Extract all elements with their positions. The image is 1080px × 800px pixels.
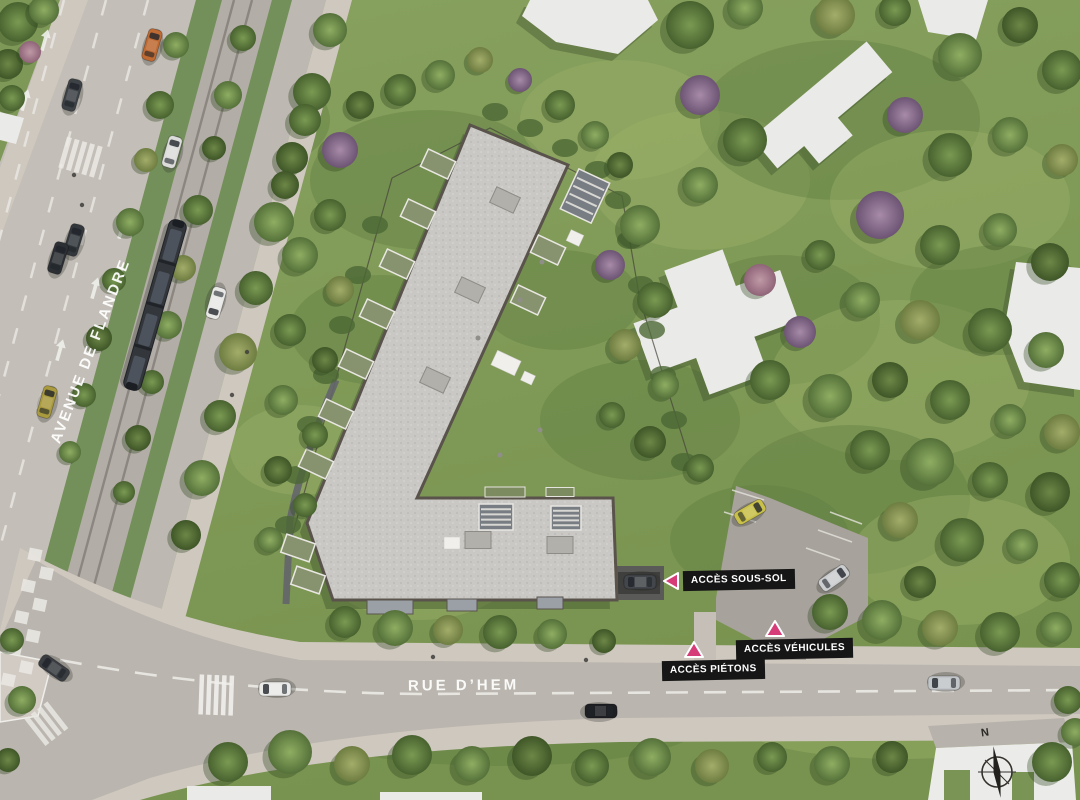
tree [8,686,36,714]
tree [254,202,294,242]
tree [856,191,904,239]
tree [980,612,1020,652]
tree [1031,243,1069,281]
tree [872,362,908,398]
tree [239,271,273,305]
car [927,672,965,692]
tree [983,213,1017,247]
tree [1044,414,1080,450]
tree [805,240,835,270]
access-arrow-up-pedestrians-icon [682,638,706,660]
site-plan: AVENUE DE FLANDRE RUE D’HEM ACCÈS SOUS-S… [0,0,1080,800]
tree [1044,562,1080,598]
tree [1046,144,1078,176]
tree [204,400,236,432]
tree [994,404,1026,436]
tree [302,422,328,448]
tree [0,85,25,111]
tree [289,104,321,136]
tree [750,360,790,400]
rue-dhem-label: RUE D’HEM [408,676,519,694]
tree [900,300,940,340]
car [258,678,296,698]
compass-north-label: N [980,727,990,740]
tree [276,142,308,174]
tree [1040,612,1072,644]
tree [0,628,24,652]
tree [682,167,718,203]
car [580,702,618,722]
tree [377,610,413,646]
tree [125,425,151,451]
tree [214,81,242,109]
tree [483,615,517,649]
tree [757,742,787,772]
tree [313,13,347,47]
tree [940,518,984,562]
tree [1002,7,1038,43]
acces-vehicules-label: ACCÈS VÉHICULES [736,638,853,660]
tree [922,610,958,646]
tree [850,430,890,470]
tree [651,371,679,399]
aerial-rendering [0,0,1080,800]
tree [293,493,317,517]
tree [184,460,220,496]
tree [326,276,354,304]
tree [537,619,567,649]
tree [723,118,767,162]
tree [920,225,960,265]
tree [814,746,850,782]
tree [282,237,318,273]
tree [329,606,361,638]
tree [264,456,292,484]
tree [862,600,902,640]
tree [230,25,256,51]
tree [620,205,660,245]
tree [906,438,954,486]
tree [633,738,671,776]
tree [575,749,609,783]
tree [384,74,416,106]
tree [637,282,673,318]
tree [314,199,346,231]
tree [334,746,370,782]
tree [938,33,982,77]
tree [887,97,923,133]
compass-icon [952,722,1042,800]
tree [784,316,816,348]
tree [1006,529,1038,561]
tree [467,47,493,73]
car [623,571,661,591]
tree [968,308,1012,352]
tree [930,380,970,420]
tree [183,195,213,225]
tree [595,250,625,280]
tree [992,117,1028,153]
tree [581,121,609,149]
tree [274,314,306,346]
tree [113,481,135,503]
tree [844,282,880,318]
tree [454,746,490,782]
tree [512,736,552,776]
tree [928,133,972,177]
tree [609,329,641,361]
tree [812,594,848,630]
tree [268,730,312,774]
tree [599,402,625,428]
tree [202,136,226,160]
tree [163,32,189,58]
acces-sous-sol-label: ACCÈS SOUS-SOL [683,569,795,591]
tree [876,741,908,773]
tree [171,520,201,550]
tree [433,615,463,645]
tree [116,208,144,236]
tree [686,454,714,482]
tree [666,1,714,49]
access-arrow-left-icon [659,569,683,593]
tree [808,374,852,418]
tree [425,60,455,90]
tree [508,68,532,92]
acces-pietons-label: ACCÈS PIÉTONS [662,659,765,681]
tree [392,735,432,775]
tree [607,152,633,178]
tree [744,264,776,296]
tree [1028,332,1064,368]
tree [545,90,575,120]
tree [904,566,936,598]
tree [346,91,374,119]
tree [146,91,174,119]
tree [19,41,41,63]
tree [972,462,1008,498]
tree [271,171,299,199]
tree [312,347,338,373]
tree [592,629,616,653]
tree [208,742,248,782]
tree [322,132,358,168]
tree [695,749,729,783]
tree [1030,472,1070,512]
tree [680,75,720,115]
tree [634,426,666,458]
tree [257,527,283,553]
tree [882,502,918,538]
access-arrow-up-vehicles-icon [763,617,787,639]
tree [268,385,298,415]
tree [134,148,158,172]
tree [219,333,257,371]
